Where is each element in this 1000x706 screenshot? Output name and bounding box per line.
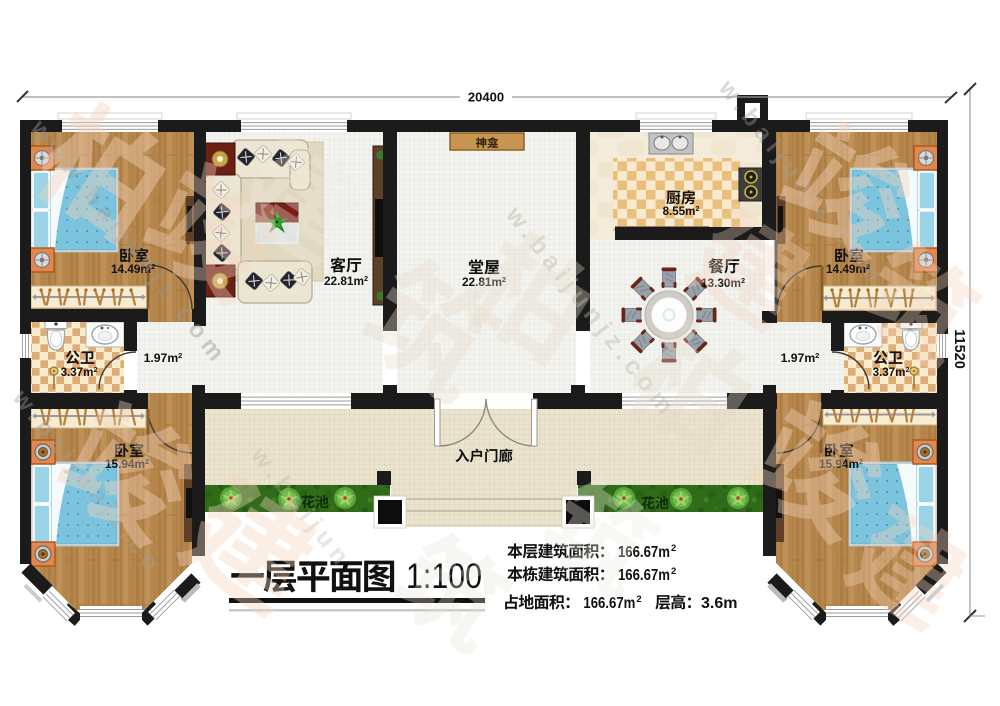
svg-text:1:100: 1:100 [406,557,482,596]
svg-text:3.37m2: 3.37m2 [61,365,98,379]
svg-text:166.67m: 166.67m [583,595,635,612]
svg-text:20400: 20400 [468,90,504,105]
svg-text:166.67m: 166.67m [618,567,670,584]
svg-text:1.97m2: 1.97m2 [781,351,820,365]
svg-text:15.94m2: 15.94m2 [819,457,863,471]
svg-text:15.94m2: 15.94m2 [105,457,149,471]
svg-text:14.49m2: 14.49m2 [111,262,155,276]
svg-text:22.81m2: 22.81m2 [324,274,368,288]
svg-text:166.67m: 166.67m [618,544,670,561]
svg-text:3.6m: 3.6m [701,595,737,612]
svg-text:14.49m2: 14.49m2 [826,262,870,276]
svg-text:8.55m2: 8.55m2 [663,204,700,218]
svg-text:2: 2 [671,566,676,577]
svg-text:2: 2 [636,594,641,605]
svg-text:13.30m2: 13.30m2 [701,276,745,290]
svg-text:1.97m2: 1.97m2 [144,351,183,365]
svg-text:2: 2 [671,543,676,554]
svg-text:22.81m2: 22.81m2 [462,275,506,289]
svg-text:11520: 11520 [951,329,967,369]
svg-text:3.37m2: 3.37m2 [873,365,910,379]
